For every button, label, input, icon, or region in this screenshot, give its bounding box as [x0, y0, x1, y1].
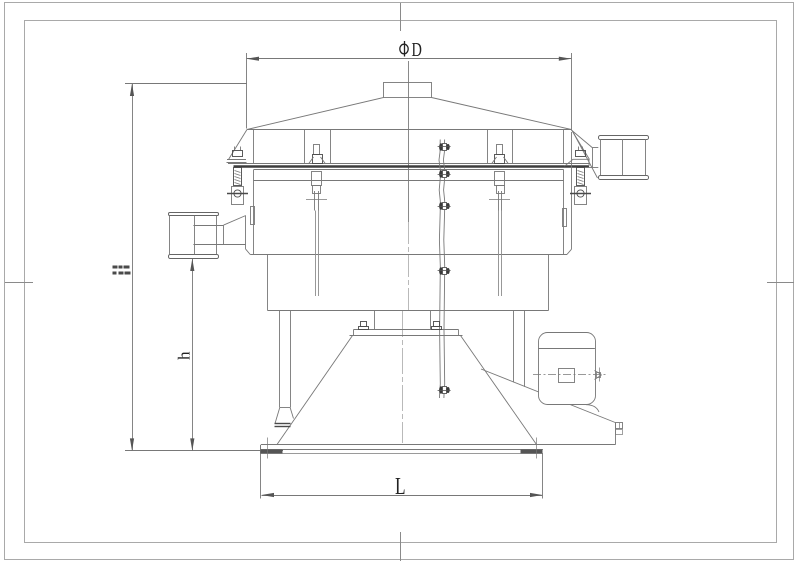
svg-text:h: h [175, 351, 194, 360]
svg-text:L: L [395, 472, 406, 500]
svg-text:D: D [412, 38, 422, 61]
